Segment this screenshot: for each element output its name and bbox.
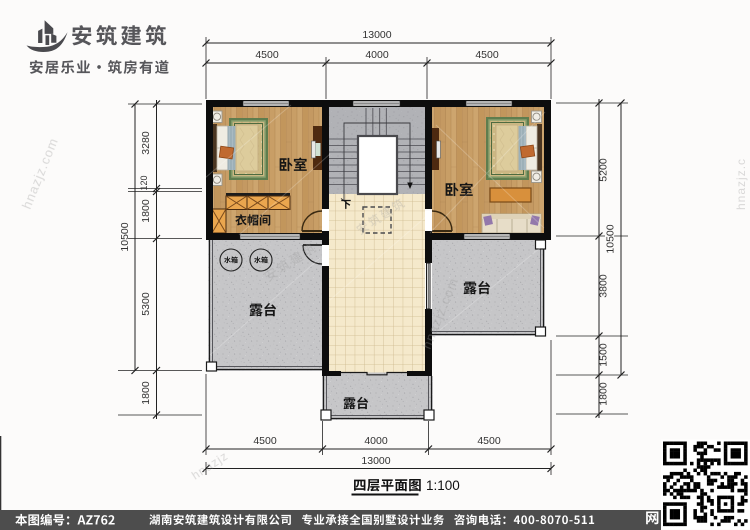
svg-text:1500: 1500 xyxy=(598,343,610,367)
svg-text:4500: 4500 xyxy=(255,49,279,61)
svg-text:hnazjz.c: hnazjz.c xyxy=(734,158,748,210)
svg-text:5200: 5200 xyxy=(598,158,610,182)
svg-text:13000: 13000 xyxy=(361,455,390,467)
svg-text:4500: 4500 xyxy=(475,49,499,61)
svg-text:1800: 1800 xyxy=(598,382,610,406)
svg-text:10500: 10500 xyxy=(605,224,617,253)
svg-text:4500: 4500 xyxy=(477,435,501,447)
svg-text:4500: 4500 xyxy=(253,435,277,447)
svg-text:1:100: 1:100 xyxy=(426,478,460,493)
svg-text:3800: 3800 xyxy=(598,274,610,298)
svg-text:1800: 1800 xyxy=(140,199,152,223)
svg-text:1800: 1800 xyxy=(140,381,152,405)
svg-text:5300: 5300 xyxy=(140,292,152,316)
svg-text:13000: 13000 xyxy=(362,29,391,41)
svg-text:3280: 3280 xyxy=(140,131,152,155)
svg-text:10500: 10500 xyxy=(119,222,131,251)
svg-text:4000: 4000 xyxy=(365,49,389,61)
svg-text:120: 120 xyxy=(139,175,149,190)
svg-text:4000: 4000 xyxy=(364,435,388,447)
